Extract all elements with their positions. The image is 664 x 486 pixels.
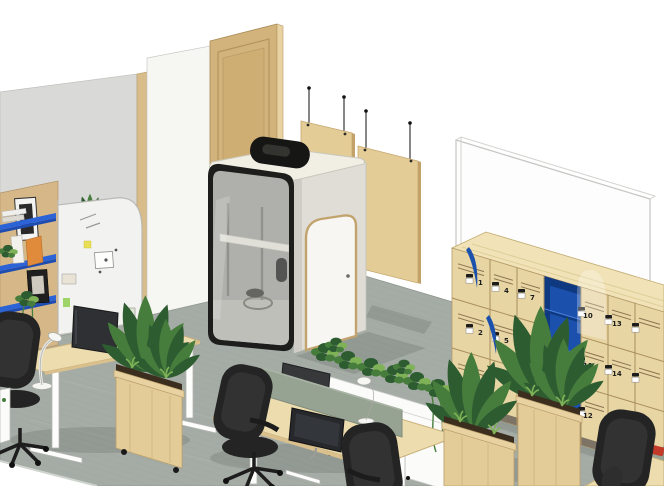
cropped-panel-left-edge bbox=[0, 388, 10, 443]
locker-number: 13 bbox=[612, 320, 622, 328]
green-card bbox=[63, 298, 70, 307]
wall-panel-white bbox=[147, 46, 210, 316]
acoustic-panel-2 bbox=[358, 146, 421, 284]
locker-number: 1 bbox=[478, 279, 483, 287]
phone-booth bbox=[208, 135, 366, 355]
office-render-canvas: 1 2 3 4 5 7 8 10 11 12 13 14 bbox=[0, 0, 664, 486]
pinned-paper bbox=[94, 251, 113, 268]
locker-number: 2 bbox=[478, 329, 483, 337]
booth-interior bbox=[210, 165, 292, 355]
locker-number: 4 bbox=[504, 287, 509, 295]
orange-folder bbox=[26, 236, 43, 266]
small-card bbox=[62, 274, 76, 284]
locker-arch-highlight bbox=[577, 270, 606, 340]
booth-side-door bbox=[306, 215, 356, 350]
locker-number: 12 bbox=[583, 412, 593, 420]
locker-number: 7 bbox=[530, 294, 535, 302]
side-door-handle bbox=[346, 274, 350, 278]
locker-number: 10 bbox=[583, 312, 593, 320]
locker-number: 5 bbox=[504, 337, 509, 345]
office-render: 1 2 3 4 5 7 8 10 11 12 13 14 bbox=[0, 0, 664, 486]
sticky-note bbox=[84, 241, 91, 248]
locker-number: 14 bbox=[612, 370, 622, 378]
